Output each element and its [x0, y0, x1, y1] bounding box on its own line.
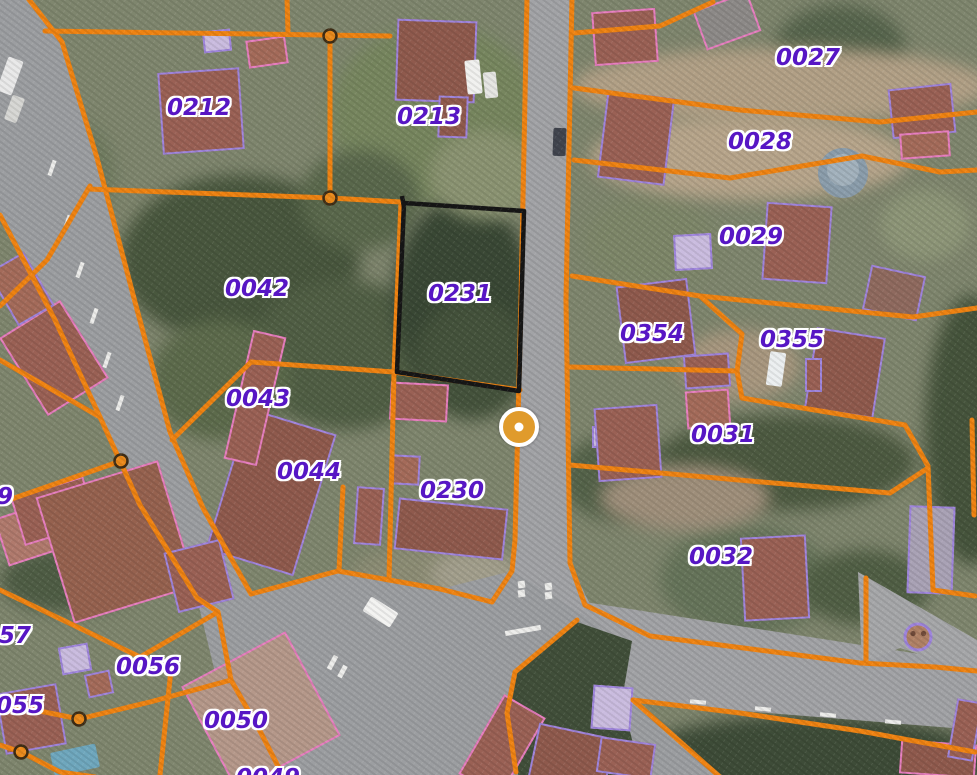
marker-center-dot: [515, 423, 524, 432]
cadastral-map[interactable]: 0212021300270028002900420231035403550043…: [0, 0, 977, 775]
parcel-node: [115, 455, 128, 468]
parcel-label-0043: 0043: [226, 386, 290, 412]
round-feature: [905, 624, 931, 650]
parcel-label-0044: 0044: [277, 459, 341, 485]
parcel-label-0355: 0355: [760, 327, 824, 353]
parcel-label-0212: 0212: [167, 95, 231, 121]
parcel-node: [15, 746, 28, 759]
parcel-label-0028: 0028: [728, 129, 792, 155]
parcel-label-0354: 0354: [620, 321, 684, 347]
parcel-label-0231: 0231: [428, 281, 492, 307]
parcel-label-0230: 0230: [420, 478, 484, 504]
parcel-label-0055: 0055: [0, 693, 44, 719]
parcel-label-57: 57: [0, 623, 31, 649]
map-marker[interactable]: [499, 407, 539, 447]
parcel-label-0049: 0049: [236, 765, 300, 775]
parcel-label-0042: 0042: [225, 276, 289, 302]
parcel-label-0213: 0213: [397, 104, 461, 130]
parcel-label-0050: 0050: [204, 708, 268, 734]
parcel-node: [324, 192, 337, 205]
parcel-label-0056: 0056: [116, 654, 180, 680]
parcel-label-0031: 0031: [691, 422, 755, 448]
parcel-label-0029: 0029: [719, 224, 783, 250]
parcel-label-9: 9: [0, 484, 13, 510]
parcel-node: [73, 713, 86, 726]
parcel-node: [324, 30, 337, 43]
parcel-label-0027: 0027: [776, 45, 840, 71]
parcel-label-0032: 0032: [689, 544, 753, 570]
